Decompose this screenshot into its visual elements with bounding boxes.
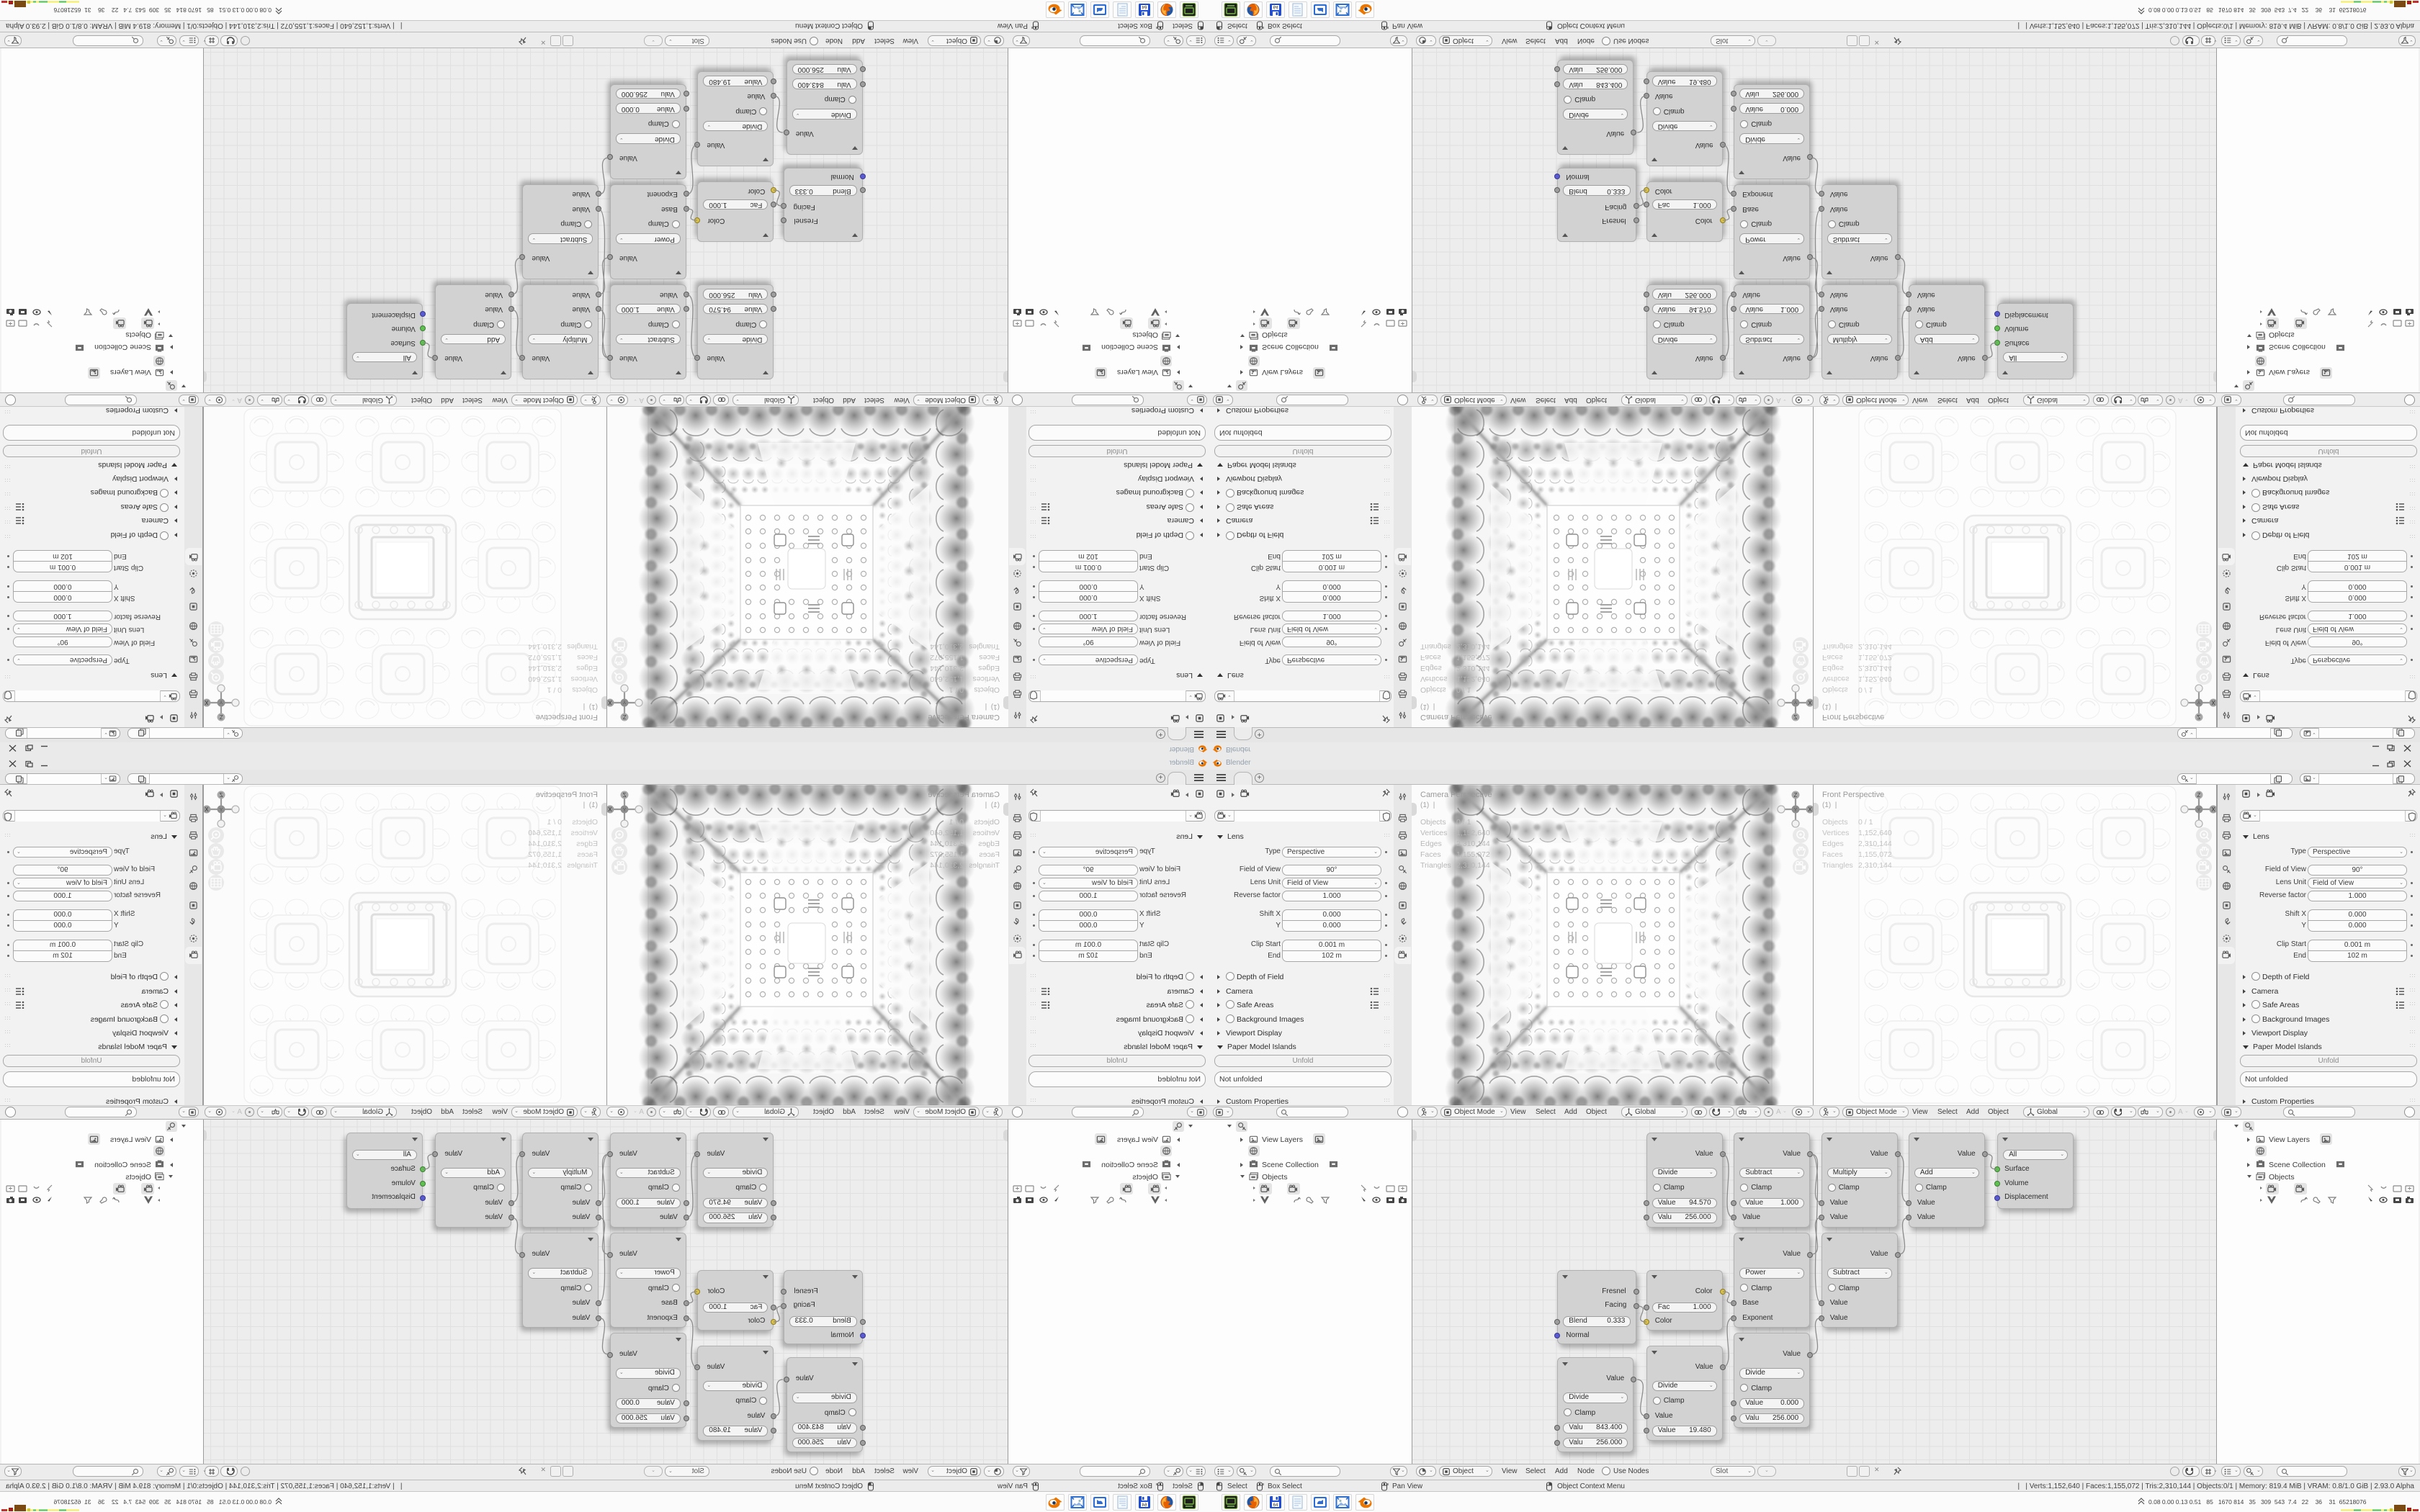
svg-text:64: 64 bbox=[1273, 4, 1278, 9]
svg-text:64: 64 bbox=[1142, 1503, 1147, 1508]
svg-text:64: 64 bbox=[1273, 1503, 1278, 1508]
svg-text:64: 64 bbox=[1142, 4, 1147, 9]
